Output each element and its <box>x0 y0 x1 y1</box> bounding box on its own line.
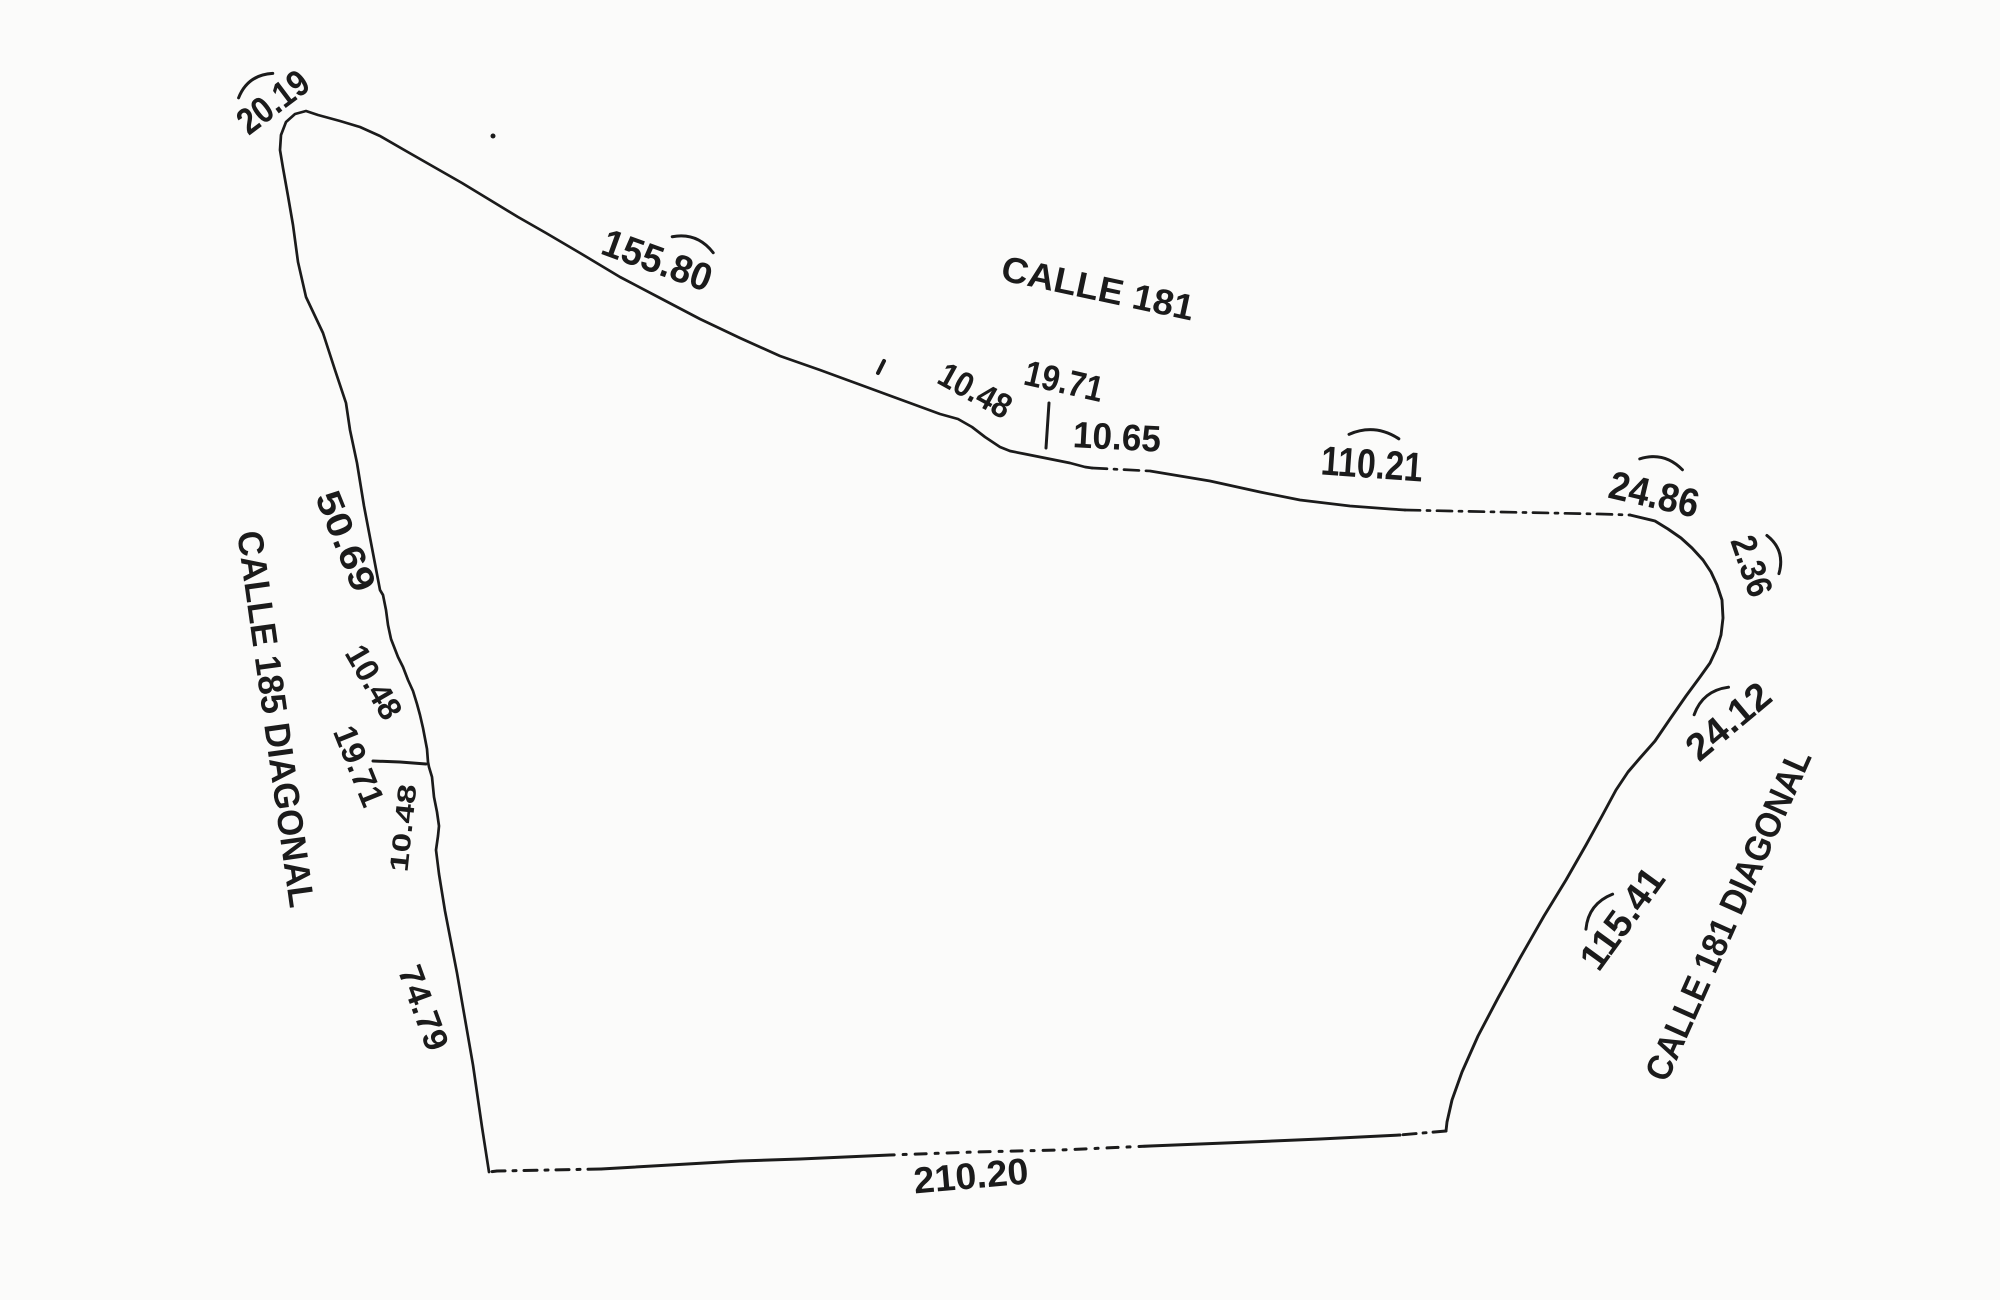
svg-text:10.65: 10.65 <box>1072 414 1162 460</box>
svg-text:110.21: 110.21 <box>1320 437 1425 490</box>
